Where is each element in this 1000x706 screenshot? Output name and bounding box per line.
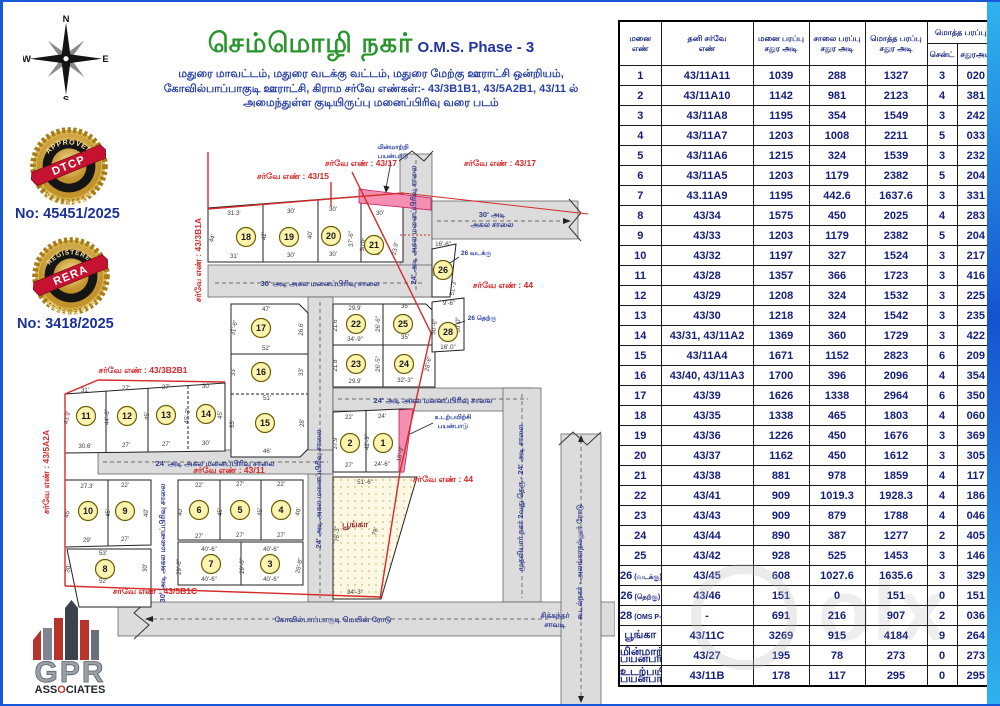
cell-survey-no: 43/42 bbox=[661, 546, 753, 566]
cell-total-area: 273 bbox=[865, 646, 927, 666]
cell-plot-area: 1203 bbox=[753, 166, 809, 186]
cell-road-area: 1019.3 bbox=[809, 486, 865, 506]
cell-road-area: 1008 bbox=[809, 126, 865, 146]
table-row: 343/11A8119535415493242 bbox=[619, 106, 995, 126]
cell-road-area: 324 bbox=[809, 146, 865, 166]
cell-plot-no: 13 bbox=[619, 306, 661, 326]
cell-plot-no: 1 bbox=[619, 66, 661, 86]
cell-survey-no: 43/11B bbox=[661, 666, 753, 687]
cell-survey-no: 43/40, 43/11A3 bbox=[661, 366, 753, 386]
cell-plot-no: மின்மாற்றிபயன்பாடு bbox=[619, 646, 661, 666]
cell-survey-no: 43/30 bbox=[661, 306, 753, 326]
cell-plot-area: 1700 bbox=[753, 366, 809, 386]
park-label: பூங்கா bbox=[342, 519, 368, 530]
road-name-label: சாவடி bbox=[544, 620, 566, 630]
cell-plot-no: 17 bbox=[619, 386, 661, 406]
table-row: மின்மாற்றிபயன்பாடு43/27195782730273 bbox=[619, 646, 995, 666]
cell-total-area: 1729 bbox=[865, 326, 927, 346]
cell-road-area: 216 bbox=[809, 606, 865, 626]
cell-cent: 3 bbox=[927, 286, 957, 306]
cell-road-area: 981 bbox=[809, 86, 865, 106]
plot-table-body: 143/11A11103928813273020243/11A101142981… bbox=[619, 66, 995, 687]
cell-road-area: 1179 bbox=[809, 226, 865, 246]
survey-number-label: சர்வே எண் : 44 bbox=[473, 280, 533, 290]
cell-total-area: 1549 bbox=[865, 106, 927, 126]
dimension-label: 42' bbox=[261, 232, 268, 240]
dimension-label: 27' bbox=[195, 533, 203, 540]
survey-number-label: சர்வே எண் : 43/5A2A bbox=[41, 430, 51, 514]
cell-survey-no: - bbox=[661, 606, 753, 626]
cell-plot-area: 1039 bbox=[753, 66, 809, 86]
dimension-label: 33' bbox=[298, 368, 305, 376]
cell-plot-no: 5 bbox=[619, 146, 661, 166]
cell-road-area: 396 bbox=[809, 366, 865, 386]
survey-number-label: சர்வே எண் : 44 bbox=[413, 474, 473, 484]
cell-road-area: 1179 bbox=[809, 166, 865, 186]
dimension-label: 47' bbox=[262, 306, 270, 313]
cell-plot-no: 23 bbox=[619, 506, 661, 526]
cell-road-area: 978 bbox=[809, 466, 865, 486]
cell-road-area: 78 bbox=[809, 646, 865, 666]
cell-cent: 5 bbox=[927, 226, 957, 246]
cell-survey-no: 43/11A7 bbox=[661, 126, 753, 146]
road-name-label: கூடல்நகர் - அலங்காநல்லூர் ரோடு bbox=[575, 504, 585, 620]
cell-plot-no: 24 bbox=[619, 526, 661, 546]
cell-total-area: 2964 bbox=[865, 386, 927, 406]
cell-plot-no: 26 (தெற்கு) bbox=[619, 586, 661, 606]
table-row: 26 (வடக்கு)43/456081027.61635.63329 bbox=[619, 566, 995, 586]
dimension-label: 27' bbox=[345, 462, 353, 469]
dimension-label: 40' bbox=[143, 509, 150, 517]
dimension-label: 27' bbox=[162, 441, 170, 448]
col-survey-no: தனி சர்வேஎண் bbox=[661, 21, 753, 66]
dimension-label: 27' bbox=[277, 532, 285, 539]
cell-plot-no: 19 bbox=[619, 426, 661, 446]
cell-plot-area: 1197 bbox=[753, 246, 809, 266]
table-row: 28 (OMS P-1)-6912169072036 bbox=[619, 606, 995, 626]
dimension-label: 45' bbox=[105, 509, 112, 517]
cell-road-area: 288 bbox=[809, 66, 865, 86]
dimension-label: 76'-3" bbox=[334, 526, 341, 542]
cell-road-area: 1152 bbox=[809, 346, 865, 366]
cell-survey-no: 43/11A11 bbox=[661, 66, 753, 86]
cell-total-area: 2823 bbox=[865, 346, 927, 366]
cell-cent: 2 bbox=[927, 526, 957, 546]
table-row: பூங்கா43/11C326991541849264 bbox=[619, 626, 995, 646]
cell-cent: 3 bbox=[927, 186, 957, 206]
dimension-label: 30' bbox=[202, 383, 210, 390]
cell-survey-no: 43/41 bbox=[661, 486, 753, 506]
cell-road-area: 525 bbox=[809, 546, 865, 566]
land-use-label: 26 தெற்கு bbox=[468, 314, 498, 324]
cell-road-area: 324 bbox=[809, 286, 865, 306]
road-name-label: 24' அடி அகல மனைப்பிரிவு சாலை bbox=[314, 429, 324, 549]
cell-cent: 4 bbox=[927, 506, 957, 526]
dimension-label: 24'-6" bbox=[374, 461, 390, 468]
dimension-label: 45' bbox=[217, 508, 224, 516]
dimension-label: 22' bbox=[121, 482, 129, 489]
cell-plot-area: 909 bbox=[753, 506, 809, 526]
cell-survey-no: 43/44 bbox=[661, 526, 753, 546]
plot-number: 8 bbox=[102, 564, 107, 574]
dimension-label: 26'-6" bbox=[375, 316, 382, 332]
road-name-label: அகல சாலை bbox=[471, 220, 515, 229]
cell-total-area: 2123 bbox=[865, 86, 927, 106]
dimension-label: 27.3' bbox=[80, 483, 93, 490]
plot-number: 24 bbox=[399, 359, 409, 369]
cell-plot-no: 20 bbox=[619, 446, 661, 466]
cell-total-area: 907 bbox=[865, 606, 927, 626]
cell-total-area: 1859 bbox=[865, 466, 927, 486]
plot-number: 15 bbox=[260, 418, 270, 428]
cell-cent: 3 bbox=[927, 66, 957, 86]
cell-total-area: 4184 bbox=[865, 626, 927, 646]
cell-plot-no: 25 bbox=[619, 546, 661, 566]
dimension-label: 22' bbox=[277, 481, 285, 488]
cell-total-area: 1524 bbox=[865, 246, 927, 266]
cell-total-area: 1928.3 bbox=[865, 486, 927, 506]
cell-plot-no: 14 bbox=[619, 326, 661, 346]
dimension-label: 40' bbox=[177, 508, 184, 516]
dimension-label: 27' bbox=[236, 532, 244, 539]
survey-number-label: சர்வே எண் : 43/3B1A bbox=[193, 218, 203, 302]
cell-survey-no: 43/34 bbox=[661, 206, 753, 226]
cell-road-area: 354 bbox=[809, 106, 865, 126]
dimension-label: 42'-9" bbox=[364, 434, 371, 450]
cell-survey-no: 43/29 bbox=[661, 286, 753, 306]
dimension-label: 29.9' bbox=[348, 305, 361, 312]
table-row: 2143/3888197818594117 bbox=[619, 466, 995, 486]
frame-right-bar bbox=[987, 2, 1000, 706]
cell-total-area: 1635.6 bbox=[865, 566, 927, 586]
cell-plot-no: 12 bbox=[619, 286, 661, 306]
dimension-label: 40'-6" bbox=[263, 546, 279, 553]
cell-plot-area: 1208 bbox=[753, 286, 809, 306]
cell-survey-no: 43/11A4 bbox=[661, 346, 753, 366]
survey-number-label: சர்வே எண் : 43/3B2B1 bbox=[99, 365, 188, 375]
dimension-label: 45' bbox=[217, 411, 224, 419]
cell-survey-no: 43/33 bbox=[661, 226, 753, 246]
land-use-label: உடற்பயிற்சி bbox=[435, 414, 472, 421]
table-row: 1643/40, 43/11A3170039620964354 bbox=[619, 366, 995, 386]
cell-plot-area: 195 bbox=[753, 646, 809, 666]
land-use-label: பயன்பாடு bbox=[378, 153, 409, 160]
cell-cent: 3 bbox=[927, 546, 957, 566]
road-name-label: 24' அடி அகல மனைப்பிரிவு சாலை bbox=[156, 459, 276, 469]
cell-plot-area: 1575 bbox=[753, 206, 809, 226]
cell-road-area: 442.6 bbox=[809, 186, 865, 206]
cell-road-area: 0 bbox=[809, 586, 865, 606]
table-row: 1943/36122645016763369 bbox=[619, 426, 995, 446]
dimension-label: 29'-6" bbox=[239, 558, 246, 574]
cell-plot-area: 1162 bbox=[753, 446, 809, 466]
cell-plot-area: 1338 bbox=[753, 406, 809, 426]
table-row: 1343/30121832415423235 bbox=[619, 306, 995, 326]
dimension-label: 40'-6" bbox=[263, 576, 279, 583]
table-row: 743.11A91195442.61637.63331 bbox=[619, 186, 995, 206]
plot-number: 5 bbox=[237, 505, 242, 515]
land-use-label: 26 வடக்கு bbox=[461, 250, 493, 259]
cell-survey-no: 43/27 bbox=[661, 646, 753, 666]
cell-plot-area: 3269 bbox=[753, 626, 809, 646]
dimension-label: 45' bbox=[144, 412, 151, 420]
plot-number: 3 bbox=[267, 559, 272, 569]
dimension-label: 35' bbox=[401, 303, 409, 310]
dimension-label: 51'-6" bbox=[357, 479, 373, 486]
cell-total-area: 2382 bbox=[865, 226, 927, 246]
cell-cent: 3 bbox=[927, 266, 957, 286]
table-row: உடற்பயிற்சிபயன்பாடு43/11B1781172950295 bbox=[619, 666, 995, 687]
plot-area-table: மனைஎண் தனி சர்வேஎண் மனை பரப்புசதுர அடி ச… bbox=[618, 20, 996, 687]
cell-survey-no: 43/37 bbox=[661, 446, 753, 466]
cell-plot-no: 7 bbox=[619, 186, 661, 206]
cell-plot-area: 608 bbox=[753, 566, 809, 586]
plot-number: 21 bbox=[369, 240, 379, 250]
survey-number-label: சர்வே எண் : 43/5B1C bbox=[113, 586, 197, 596]
dimension-label: 16'-6" bbox=[435, 241, 451, 248]
cell-cent: 4 bbox=[927, 206, 957, 226]
plot-number: 6 bbox=[196, 505, 201, 515]
cell-road-area: 327 bbox=[809, 246, 865, 266]
cell-cent: 0 bbox=[927, 666, 957, 687]
dimension-label: 29.9' bbox=[348, 378, 361, 385]
cell-plot-no: 9 bbox=[619, 226, 661, 246]
table-row: 943/331203117923825204 bbox=[619, 226, 995, 246]
road-name-label: 24' அடி அகல மனைப்பிரிவு சாலை bbox=[409, 165, 419, 285]
cell-plot-area: 691 bbox=[753, 606, 809, 626]
plot-number: 4 bbox=[278, 505, 283, 515]
cell-cent: 4 bbox=[927, 406, 957, 426]
col-total-area: மொத்த பரப்புசதுர அடி bbox=[865, 21, 927, 66]
cell-plot-no: 18 bbox=[619, 406, 661, 426]
road-name-label: முதலியார் நகர் 2வது தெரு - 24' அடி சாலை bbox=[516, 424, 526, 572]
dimension-label: 30' bbox=[287, 208, 295, 215]
cell-cent: 5 bbox=[927, 126, 957, 146]
dimension-label: 30' bbox=[329, 206, 337, 213]
table-row: 1743/391626133829646350 bbox=[619, 386, 995, 406]
cell-plot-no: உடற்பயிற்சிபயன்பாடு bbox=[619, 666, 661, 687]
dimension-label: 27' bbox=[122, 385, 130, 392]
cell-plot-no: 21 bbox=[619, 466, 661, 486]
dimension-label: 37'-6" bbox=[348, 231, 355, 247]
cell-survey-no: 43/32 bbox=[661, 246, 753, 266]
col-total-extent-group: மொத்த பரப்பு bbox=[927, 21, 995, 44]
cell-cent: 3 bbox=[927, 146, 957, 166]
dimension-label: 44'-6" bbox=[104, 409, 111, 425]
table-row: 1843/35133846518034060 bbox=[619, 406, 995, 426]
table-row: 2343/4390987917884046 bbox=[619, 506, 995, 526]
cell-survey-no: 43/35 bbox=[661, 406, 753, 426]
plot-number: 25 bbox=[398, 319, 408, 329]
cell-cent: 3 bbox=[927, 566, 957, 586]
cell-survey-no: 43/11A8 bbox=[661, 106, 753, 126]
dimension-label: 21.8' bbox=[332, 358, 339, 371]
table-row: 643/11A51203117923825204 bbox=[619, 166, 995, 186]
cell-cent: 3 bbox=[927, 446, 957, 466]
cell-plot-area: 1195 bbox=[753, 186, 809, 206]
plot-number: 7 bbox=[208, 559, 213, 569]
table-row: 2443/4489038712772405 bbox=[619, 526, 995, 546]
cell-total-area: 1539 bbox=[865, 146, 927, 166]
dimension-label: 46' bbox=[263, 448, 271, 455]
dimension-label: 27' bbox=[162, 384, 170, 391]
dimension-label: 30' bbox=[142, 564, 149, 572]
plot-number: 17 bbox=[256, 323, 266, 333]
cell-total-area: 1542 bbox=[865, 306, 927, 326]
road-name-label: 30' அடி அகல மனைப்பிரிவு சாலை bbox=[158, 483, 168, 603]
cell-cent: 4 bbox=[927, 486, 957, 506]
col-cent: சென்ட் bbox=[927, 44, 957, 66]
cell-cent: 5 bbox=[927, 166, 957, 186]
dimension-label: 30.6' bbox=[78, 443, 91, 450]
cell-plot-area: 1142 bbox=[753, 86, 809, 106]
cell-cent: 0 bbox=[927, 586, 957, 606]
cell-survey-no: 43/31, 43/11A2 bbox=[661, 326, 753, 346]
dimension-label: 30' bbox=[329, 251, 337, 258]
cell-survey-no: 43/11A5 bbox=[661, 166, 753, 186]
cell-cent: 3 bbox=[927, 106, 957, 126]
table-row: 1243/29120832415323225 bbox=[619, 286, 995, 306]
table-row: 1543/11A41671115228236209 bbox=[619, 346, 995, 366]
table-row: 26 (தெற்கு)43/4615101510151 bbox=[619, 586, 995, 606]
col-plot-area: மனை பரப்புசதுர அடி bbox=[753, 21, 809, 66]
cell-total-area: 2382 bbox=[865, 166, 927, 186]
dimension-label: 29'-6" bbox=[176, 559, 183, 575]
plot-number: 19 bbox=[284, 232, 294, 242]
cell-plot-no: பூங்கா bbox=[619, 626, 661, 646]
plot-number: 28 bbox=[443, 327, 453, 337]
cell-road-area: 915 bbox=[809, 626, 865, 646]
land-use-label: பயன்பாடு bbox=[438, 423, 469, 430]
cell-plot-area: 1218 bbox=[753, 306, 809, 326]
dimension-label: 51' bbox=[263, 395, 271, 402]
road-name-label: 30' அடி அகல மனைப்பிரிவு சாலை bbox=[261, 279, 381, 289]
cell-plot-no: 3 bbox=[619, 106, 661, 126]
dimension-label: 28' bbox=[299, 419, 306, 427]
dimension-label: 30' bbox=[202, 440, 210, 447]
plot-number: 1 bbox=[380, 438, 385, 448]
cell-plot-area: 1215 bbox=[753, 146, 809, 166]
cell-survey-no: 43/11A6 bbox=[661, 146, 753, 166]
dimension-label: 16'.0" bbox=[440, 344, 455, 351]
cell-road-area: 465 bbox=[809, 406, 865, 426]
cell-plot-no: 11 bbox=[619, 266, 661, 286]
cell-plot-area: 1369 bbox=[753, 326, 809, 346]
cell-plot-area: 151 bbox=[753, 586, 809, 606]
cell-plot-area: 1626 bbox=[753, 386, 809, 406]
dimension-label: 27' bbox=[236, 481, 244, 488]
plot-number: 13 bbox=[161, 410, 171, 420]
table-row: 1143/28135736617233416 bbox=[619, 266, 995, 286]
table-row: 1443/31, 43/11A2136936017293422 bbox=[619, 326, 995, 346]
dimension-label: 45' bbox=[257, 508, 264, 516]
table-header: மனைஎண் தனி சர்வேஎண் மனை பரப்புசதுர அடி ச… bbox=[619, 21, 995, 66]
dimension-label: 21.6' bbox=[332, 318, 339, 331]
gpr-associates-logo: GPR ASSOCIATES bbox=[19, 598, 131, 696]
cell-plot-no: 16 bbox=[619, 366, 661, 386]
road-name-label: 24' அடி அகல மனைப்பிரிவு சாலை bbox=[374, 396, 494, 406]
cell-road-area: 450 bbox=[809, 206, 865, 226]
cell-plot-no: 2 bbox=[619, 86, 661, 106]
cell-road-area: 1027.6 bbox=[809, 566, 865, 586]
cell-survey-no: 43/28 bbox=[661, 266, 753, 286]
cell-cent: 3 bbox=[927, 426, 957, 446]
cell-cent: 6 bbox=[927, 386, 957, 406]
cell-cent: 2 bbox=[927, 606, 957, 626]
logo-associates-text: ASSOCIATES bbox=[35, 684, 106, 696]
plot-number: 22 bbox=[351, 319, 361, 329]
cell-survey-no: 43/39 bbox=[661, 386, 753, 406]
cell-total-area: 1803 bbox=[865, 406, 927, 426]
table-row: 243/11A10114298121234381 bbox=[619, 86, 995, 106]
cell-road-area: 360 bbox=[809, 326, 865, 346]
road-name-label: 30' அடி bbox=[479, 210, 507, 220]
cell-total-area: 1637.6 bbox=[865, 186, 927, 206]
dimension-label: 22' bbox=[195, 482, 203, 489]
cell-plot-area: 928 bbox=[753, 546, 809, 566]
cell-plot-area: 1195 bbox=[753, 106, 809, 126]
plot-number: 16 bbox=[256, 367, 266, 377]
cell-survey-no: 43/43 bbox=[661, 506, 753, 526]
cell-total-area: 295 bbox=[865, 666, 927, 687]
dimension-label: 22' bbox=[345, 414, 353, 421]
cell-survey-no: 43/38 bbox=[661, 466, 753, 486]
dimension-label: 26'-5" bbox=[375, 356, 382, 372]
plot-number: 23 bbox=[351, 359, 361, 369]
dimension-label: 53' bbox=[99, 550, 107, 557]
cell-cent: 4 bbox=[927, 366, 957, 386]
table-row: 543/11A6121532415393232 bbox=[619, 146, 995, 166]
cell-plot-area: 890 bbox=[753, 526, 809, 546]
cell-total-area: 1453 bbox=[865, 546, 927, 566]
cell-total-area: 151 bbox=[865, 586, 927, 606]
cell-plot-no: 22 bbox=[619, 486, 661, 506]
cell-plot-no: 10 bbox=[619, 246, 661, 266]
dimension-label: 27' bbox=[121, 536, 129, 543]
cell-cent: 3 bbox=[927, 326, 957, 346]
cell-plot-no: 4 bbox=[619, 126, 661, 146]
dimension-label: 32'-3" bbox=[397, 377, 413, 384]
plot-number: 14 bbox=[201, 409, 211, 419]
cell-survey-no: 43/46 bbox=[661, 586, 753, 606]
cell-total-area: 2211 bbox=[865, 126, 927, 146]
dimension-label: 30' bbox=[376, 210, 384, 217]
table-row: 143/11A11103928813273020 bbox=[619, 66, 995, 86]
cell-road-area: 879 bbox=[809, 506, 865, 526]
cell-road-area: 450 bbox=[809, 426, 865, 446]
dimension-label: 34'-9" bbox=[347, 336, 363, 343]
cell-plot-area: 881 bbox=[753, 466, 809, 486]
dimension-label: 40'-6" bbox=[201, 546, 217, 553]
cell-total-area: 1723 bbox=[865, 266, 927, 286]
cell-survey-no: 43/45 bbox=[661, 566, 753, 586]
cell-road-area: 366 bbox=[809, 266, 865, 286]
survey-number-label: சர்வே எண் : 43/15 bbox=[257, 171, 329, 181]
dimension-label: 40'-6" bbox=[201, 576, 217, 583]
cell-survey-no: 43/11C bbox=[661, 626, 753, 646]
survey-number-label: சர்வே எண் : 43/17 bbox=[464, 158, 536, 168]
cell-total-area: 2096 bbox=[865, 366, 927, 386]
cell-road-area: 387 bbox=[809, 526, 865, 546]
dimension-label: 31' bbox=[81, 387, 89, 394]
table-row: 443/11A71203100822115033 bbox=[619, 126, 995, 146]
cell-total-area: 1532 bbox=[865, 286, 927, 306]
cell-total-area: 2025 bbox=[865, 206, 927, 226]
cell-total-area: 1788 bbox=[865, 506, 927, 526]
dimension-label: 34'-3" bbox=[347, 589, 363, 596]
cell-plot-area: 1357 bbox=[753, 266, 809, 286]
plot-number: 20 bbox=[326, 231, 336, 241]
